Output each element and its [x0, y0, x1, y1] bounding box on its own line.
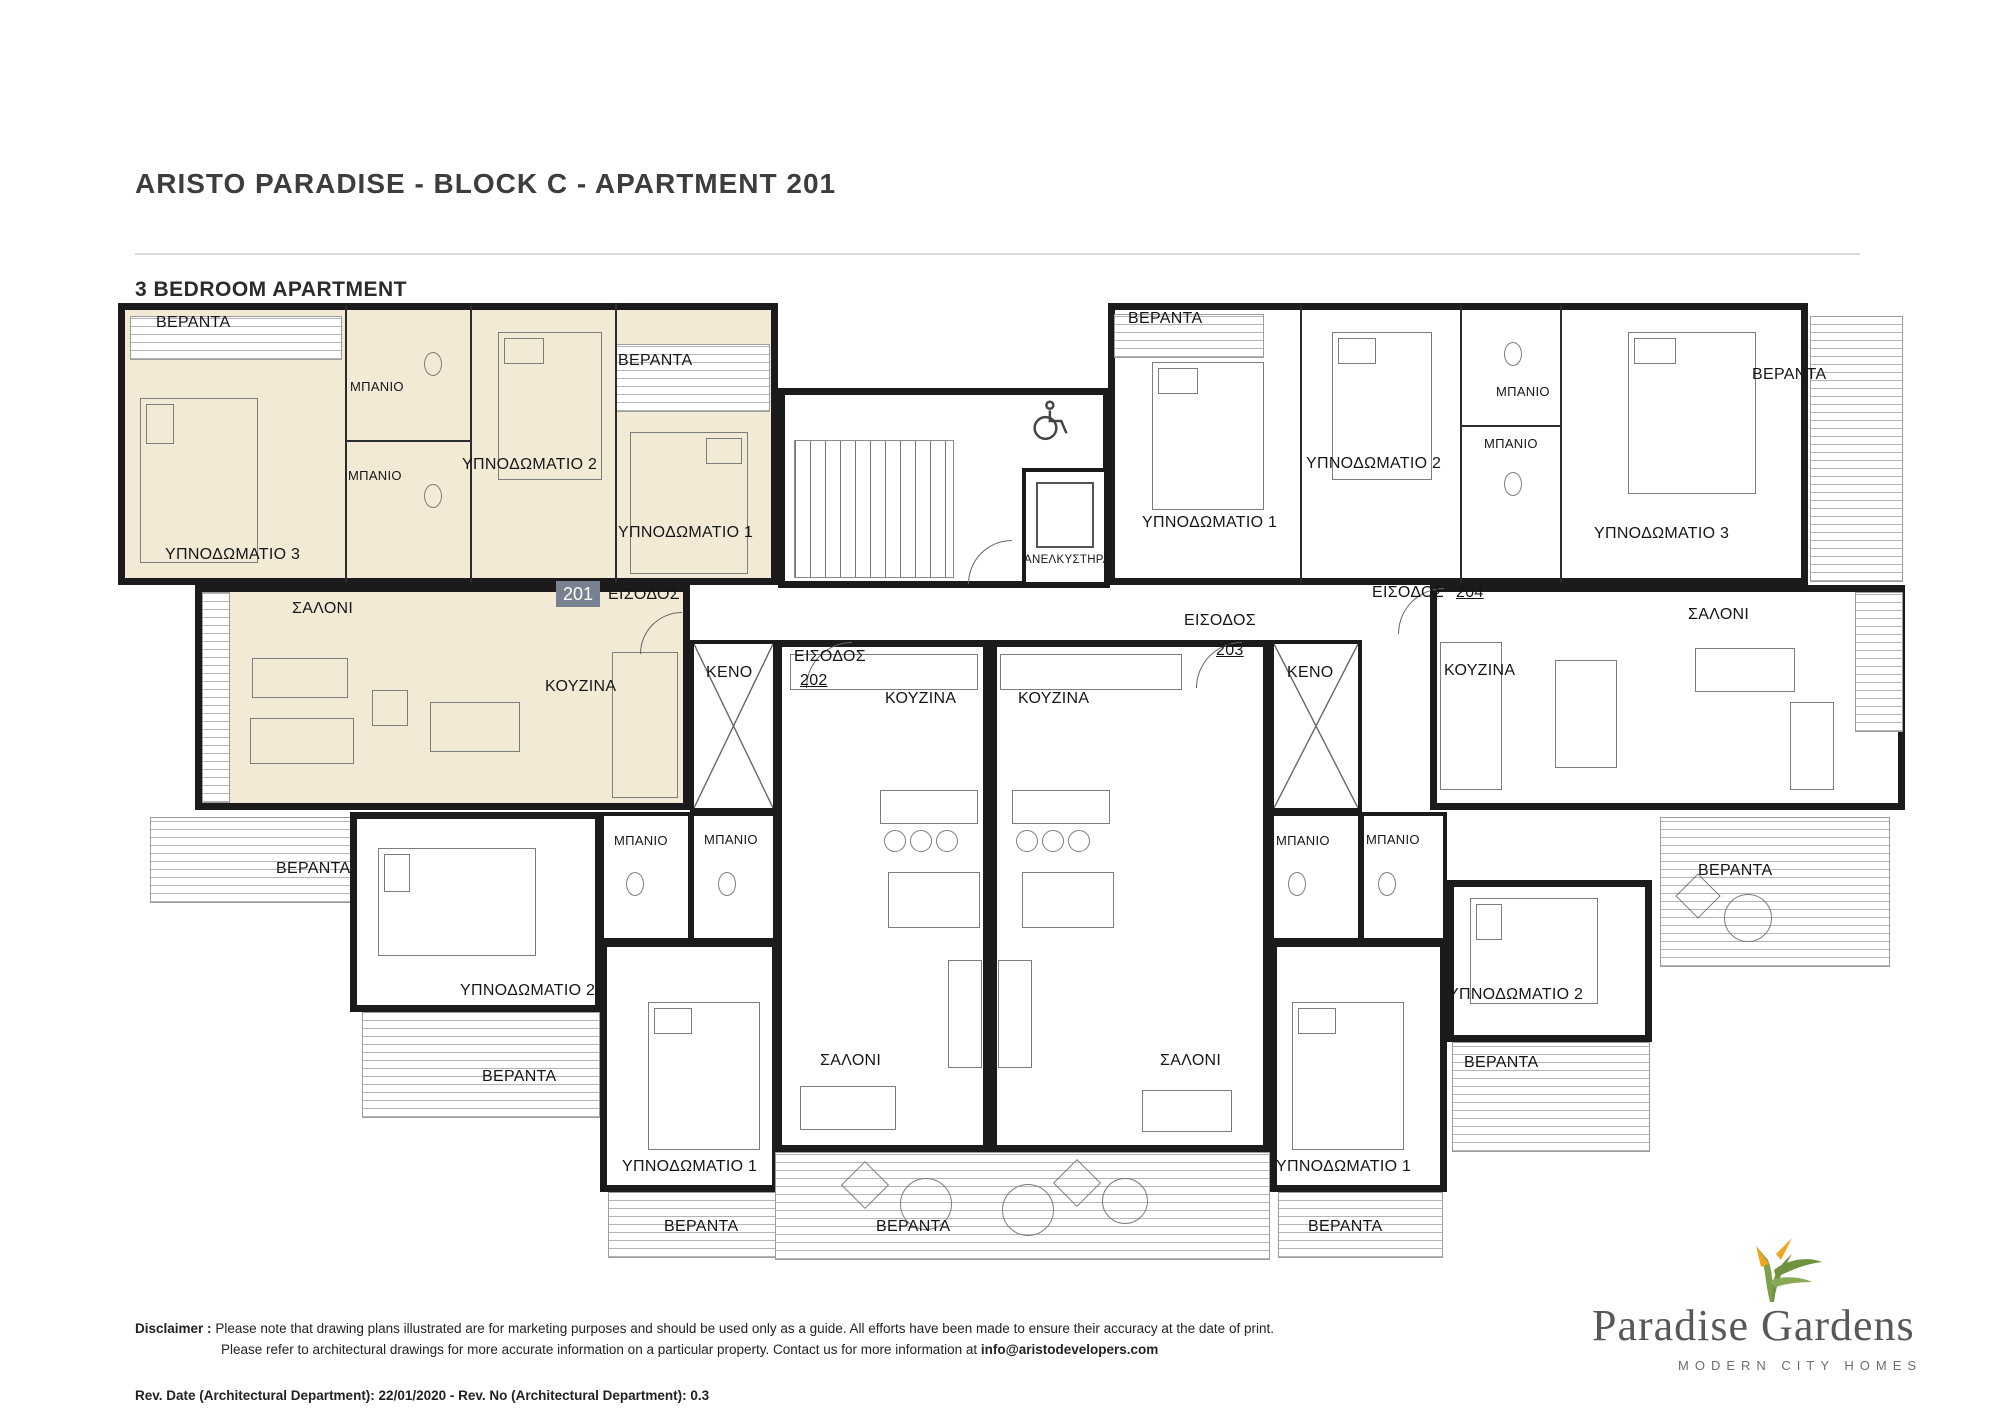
paradise-gardens-flower-icon [1720, 1232, 1825, 1304]
dining-table [1555, 660, 1617, 768]
room-label-veranda: ΒΕΡΑΝΤΑ [1308, 1218, 1382, 1236]
apartment-number-203: 203 [1216, 642, 1244, 660]
room-label-veranda: ΒΕΡΑΝΤΑ [1752, 366, 1826, 384]
pillow [1634, 338, 1676, 364]
room-label-bathroom: ΜΠΑΝΙΟ [1276, 833, 1330, 848]
disclaimer-email: info@aristodevelopers.com [981, 1342, 1158, 1357]
veranda-hatch [1855, 592, 1903, 732]
room-label-bathroom: ΜΠΑΝΙΟ [348, 468, 402, 483]
pillow [504, 338, 544, 364]
room-label-salon: ΣΑΛΟΝΙ [1688, 606, 1749, 624]
room-label-bathroom: ΜΠΑΝΙΟ [350, 379, 404, 394]
terrace-table [1102, 1178, 1148, 1224]
wall-partition [1460, 425, 1560, 427]
veranda-hatch [1810, 316, 1903, 582]
room-label-veranda: ΒΕΡΑΝΤΑ [876, 1218, 950, 1236]
wall-partition [1560, 305, 1562, 583]
room-label-kitchen: ΚΟΥΖΙΝΑ [1018, 690, 1089, 708]
staircase [794, 440, 954, 578]
kitchen-island [880, 790, 978, 824]
pillow [654, 1008, 692, 1034]
dining-table [430, 702, 520, 752]
sofa [1695, 648, 1795, 692]
room-label-bedroom2: ΥΠΝΟΔΩΜΑΤΙΟ 2 [462, 456, 597, 474]
elevator-car [1036, 482, 1094, 548]
page-subtitle: 3 BEDROOM APARTMENT [135, 278, 407, 302]
room-label-kitchen: ΚΟΥΖΙΝΑ [1444, 662, 1515, 680]
room-label-bedroom2: ΥΠΝΟΔΩΜΑΤΙΟ 2 [460, 982, 595, 1000]
room-label-salon: ΣΑΛΟΝΙ [292, 600, 353, 618]
apartment-number-202: 202 [800, 672, 828, 690]
toilet [1504, 472, 1522, 496]
pillow [1338, 338, 1376, 364]
toilet [424, 484, 442, 508]
room-label-salon: ΣΑΛΟΝΙ [1160, 1052, 1221, 1070]
room-label-void: KENO [706, 664, 753, 682]
dining-table [1022, 872, 1114, 928]
stool [910, 830, 932, 852]
room-label-void: KENO [1287, 664, 1334, 682]
sofa [800, 1086, 896, 1130]
sofa [1142, 1090, 1232, 1132]
kitchen-island [1012, 790, 1110, 824]
wheelchair-icon [1028, 398, 1070, 444]
stool [1068, 830, 1090, 852]
stool [1042, 830, 1064, 852]
pillow [384, 854, 410, 892]
toilet [626, 872, 644, 896]
disclaimer: Disclaimer : Please note that drawing pl… [135, 1318, 1274, 1360]
room-label-bedroom3: ΥΠΝΟΔΩΜΑΤΙΟ 3 [165, 546, 300, 564]
room-label-veranda: ΒΕΡΑΝΤΑ [1464, 1054, 1538, 1072]
room-label-veranda: ΒΕΡΑΝΤΑ [1128, 310, 1202, 328]
sofa [1790, 702, 1834, 790]
apartment-203-bathroom [1270, 812, 1362, 942]
disclaimer-label: Disclaimer : [135, 1321, 212, 1336]
room-label-bathroom: ΜΠΑΝΙΟ [614, 833, 668, 848]
pillow [1298, 1008, 1336, 1034]
sofa [250, 718, 354, 764]
wall-partition [1300, 305, 1302, 583]
stool [884, 830, 906, 852]
kitchen-counter [612, 652, 678, 798]
revision-note: Rev. Date (Architectural Department): 22… [135, 1388, 709, 1403]
wall-partition [345, 305, 347, 583]
room-label-kitchen: ΚΟΥΖΙΝΑ [545, 678, 616, 696]
room-label-bedroom1: ΥΠΝΟΔΩΜΑΤΙΟ 1 [1276, 1158, 1411, 1176]
veranda-hatch [202, 592, 230, 803]
pillow [1158, 368, 1198, 394]
kitchen-counter [1000, 654, 1182, 690]
room-label-bathroom: ΜΠΑΝΙΟ [1496, 384, 1550, 399]
toilet [1504, 342, 1522, 366]
room-label-bedroom1: ΥΠΝΟΔΩΜΑΤΙΟ 1 [1142, 514, 1277, 532]
room-label-veranda: ΒΕΡΑΝΤΑ [156, 314, 230, 332]
terrace-table [1724, 894, 1772, 942]
room-label-veranda: ΒΕΡΑΝΤΑ [482, 1068, 556, 1086]
sofa [998, 960, 1032, 1068]
room-label-bathroom: ΜΠΑΝΙΟ [1484, 436, 1538, 451]
page-title: ARISTO PARADISE - BLOCK C - APARTMENT 20… [135, 168, 836, 200]
room-label-bedroom3: ΥΠΝΟΔΩΜΑΤΙΟ 3 [1594, 525, 1729, 543]
room-label-bathroom: ΜΠΑΝΙΟ [704, 832, 758, 847]
floorplan-page: ARISTO PARADISE - BLOCK C - APARTMENT 20… [0, 0, 2000, 1414]
pillow [706, 438, 742, 464]
stool [1016, 830, 1038, 852]
room-label-veranda: ΒΕΡΑΝΤΑ [276, 860, 350, 878]
room-label-veranda: ΒΕΡΑΝΤΑ [664, 1218, 738, 1236]
pillow [1476, 904, 1502, 940]
room-label-veranda: ΒΕΡΑΝΤΑ [1698, 862, 1772, 880]
toilet [1378, 872, 1396, 896]
room-label-entrance-204: ΕΙΣΟΔΟΣ [1372, 584, 1444, 602]
paradise-gardens-logo: Paradise Gardens [1592, 1300, 1915, 1351]
dining-table [888, 872, 980, 928]
room-label-salon: ΣΑΛΟΝΙ [820, 1052, 881, 1070]
room-label-entrance: ΕΙΣΟΔΟΣ [608, 586, 680, 604]
room-label-bedroom1: ΥΠΝΟΔΩΜΑΤΙΟ 1 [618, 524, 753, 542]
sofa [252, 658, 348, 698]
logo-tagline: MODERN CITY HOMES [1678, 1358, 1922, 1373]
title-divider [135, 253, 1860, 255]
disclaimer-line1: Please note that drawing plans illustrat… [215, 1321, 1274, 1336]
disclaimer-line2: Please refer to architectural drawings f… [135, 1342, 981, 1357]
coffee-table [372, 690, 408, 726]
apartment-number-204: 204 [1456, 584, 1484, 602]
wall-partition [470, 305, 472, 583]
room-label-bathroom: ΜΠΑΝΙΟ [1366, 832, 1420, 847]
toilet [718, 872, 736, 896]
veranda-hatch [362, 1012, 600, 1118]
pillow [146, 404, 174, 444]
terrace-table [1002, 1184, 1054, 1236]
room-label-elevator: ΑΝΕΛΚΥΣΤΗΡΑΣ [1024, 554, 1118, 566]
room-label-bedroom2: ΥΠΝΟΔΩΜΑΤΙΟ 2 [1448, 986, 1583, 1004]
stool [936, 830, 958, 852]
room-label-entrance-202: ΕΙΣΟΔΟΣ [794, 648, 866, 666]
apartment-202-bathroom [600, 812, 692, 942]
room-label-bedroom2: ΥΠΝΟΔΩΜΑΤΙΟ 2 [1306, 455, 1441, 473]
room-label-entrance-203: ΕΙΣΟΔΟΣ [1184, 612, 1256, 630]
wall-partition [345, 440, 472, 442]
wall-partition [1460, 305, 1462, 583]
room-label-veranda: ΒΕΡΑΝΤΑ [618, 352, 692, 370]
room-label-bedroom1: ΥΠΝΟΔΩΜΑΤΙΟ 1 [622, 1158, 757, 1176]
room-label-kitchen: ΚΟΥΖΙΝΑ [885, 690, 956, 708]
wall-partition [615, 303, 617, 583]
sofa [948, 960, 982, 1068]
toilet [424, 352, 442, 376]
apartment-badge-201: 201 [556, 581, 600, 607]
toilet [1288, 872, 1306, 896]
